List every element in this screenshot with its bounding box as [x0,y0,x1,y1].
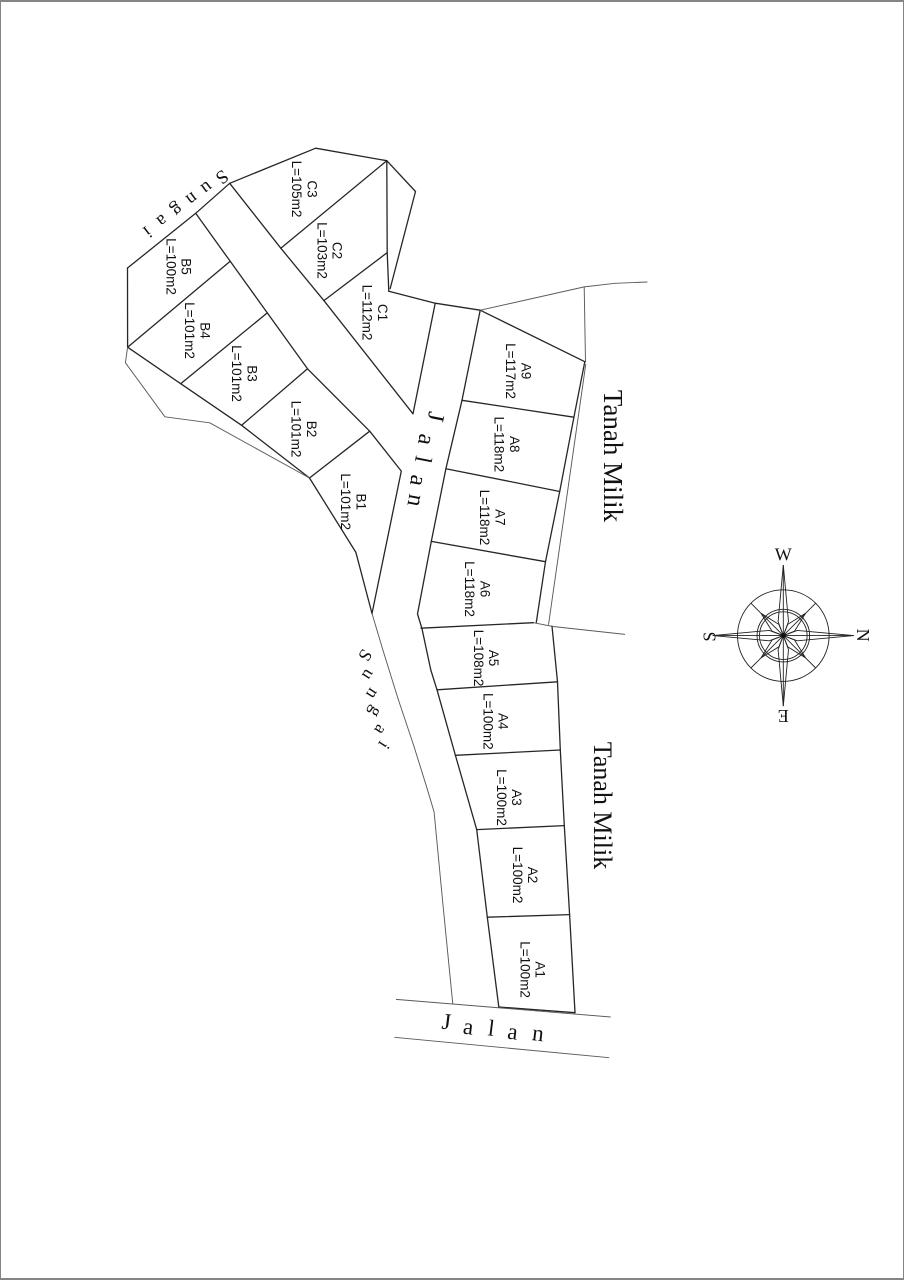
svg-text:L=118m2: L=118m2 [462,561,477,617]
svg-text:L=101m2: L=101m2 [338,473,353,530]
svg-text:L=105m2: L=105m2 [289,161,304,218]
svg-text:i: i [374,738,394,753]
svg-text:L=108m2: L=108m2 [471,630,486,687]
svg-text:A4: A4 [496,713,511,730]
svg-text:n: n [181,187,202,210]
svg-text:L=118m2: L=118m2 [492,416,507,472]
svg-text:u: u [196,176,217,199]
svg-text:L=100m2: L=100m2 [480,693,495,750]
svg-text:n: n [531,1020,546,1046]
svg-text:a: a [506,1019,519,1045]
svg-text:L=117m2: L=117m2 [503,343,518,399]
svg-text:L=101m2: L=101m2 [182,302,197,359]
svg-text:A9: A9 [519,363,534,380]
svg-text:a: a [404,473,432,489]
svg-text:u: u [358,666,380,684]
svg-text:n: n [401,492,429,509]
svg-text:J: J [422,410,449,424]
svg-text:g: g [365,703,387,721]
svg-text:a: a [370,721,391,739]
svg-text:J: J [441,1009,453,1035]
svg-text:C2: C2 [330,242,345,259]
svg-text:L=100m2: L=100m2 [510,847,525,904]
svg-text:L=100m2: L=100m2 [163,238,178,295]
svg-text:A7: A7 [492,509,507,526]
svg-text:L=101m2: L=101m2 [229,345,244,402]
svg-text:l: l [409,454,436,466]
svg-text:A3: A3 [509,789,524,806]
svg-text:a: a [412,432,440,448]
svg-text:B4: B4 [198,322,213,339]
svg-text:W: W [775,545,792,565]
svg-text:L=118m2: L=118m2 [477,490,492,546]
svg-text:A6: A6 [477,581,492,598]
svg-text:A1: A1 [533,961,548,978]
svg-text:L=112m2: L=112m2 [360,285,375,341]
svg-text:Tanah Milik: Tanah Milik [598,390,628,523]
svg-text:A8: A8 [507,436,522,453]
svg-text:S: S [699,632,719,642]
svg-text:L=101m2: L=101m2 [289,401,304,458]
svg-text:S: S [354,646,376,665]
svg-text:B1: B1 [354,493,369,510]
svg-text:A5: A5 [486,650,501,667]
svg-text:N: N [853,629,873,642]
svg-text:A2: A2 [525,867,540,884]
svg-text:B5: B5 [179,258,194,275]
svg-text:E: E [778,706,789,726]
svg-text:C3: C3 [305,180,320,197]
svg-text:C1: C1 [375,304,390,321]
svg-text:a: a [462,1014,475,1040]
svg-text:i: i [139,222,156,242]
svg-text:L=103m2: L=103m2 [314,222,329,279]
svg-text:L=100m2: L=100m2 [494,769,509,826]
svg-text:S: S [211,165,232,188]
svg-text:n: n [362,685,384,703]
svg-text:a: a [152,210,172,232]
svg-text:B2: B2 [304,421,319,438]
svg-text:Tanah Milik: Tanah Milik [588,742,617,869]
svg-text:g: g [166,198,187,221]
svg-text:l: l [487,1015,496,1041]
svg-text:B3: B3 [245,365,260,382]
svg-text:L=100m2: L=100m2 [517,941,532,998]
